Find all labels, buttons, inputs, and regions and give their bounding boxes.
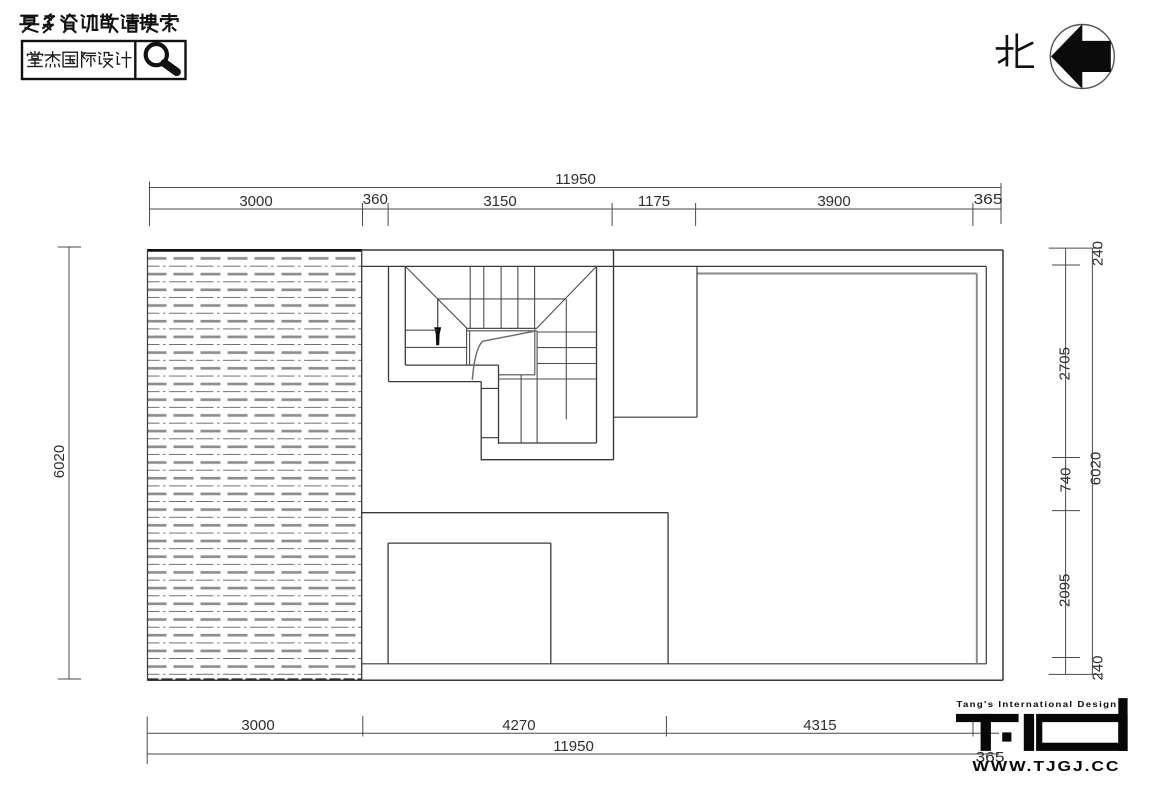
svg-text:3000: 3000 — [241, 717, 274, 734]
svg-text:3150: 3150 — [483, 193, 516, 210]
svg-text:6020: 6020 — [51, 445, 68, 478]
svg-text:Tang's International Design: Tang's International Design — [957, 699, 1118, 709]
svg-text:740: 740 — [1058, 467, 1075, 492]
svg-text:11950: 11950 — [555, 171, 596, 188]
svg-text:1175: 1175 — [638, 193, 670, 210]
svg-text:WWW.TJGJ.CC: WWW.TJGJ.CC — [972, 759, 1120, 775]
svg-text:360: 360 — [363, 191, 388, 208]
svg-text:3000: 3000 — [239, 193, 272, 210]
svg-text:2705: 2705 — [1057, 347, 1074, 380]
svg-text:4315: 4315 — [803, 717, 836, 734]
svg-text:6020: 6020 — [1088, 452, 1105, 485]
svg-text:4270: 4270 — [502, 717, 535, 734]
svg-text:365: 365 — [974, 191, 1003, 208]
svg-text:11950: 11950 — [553, 738, 594, 755]
svg-text:2095: 2095 — [1057, 574, 1074, 607]
svg-text:3900: 3900 — [817, 193, 850, 210]
